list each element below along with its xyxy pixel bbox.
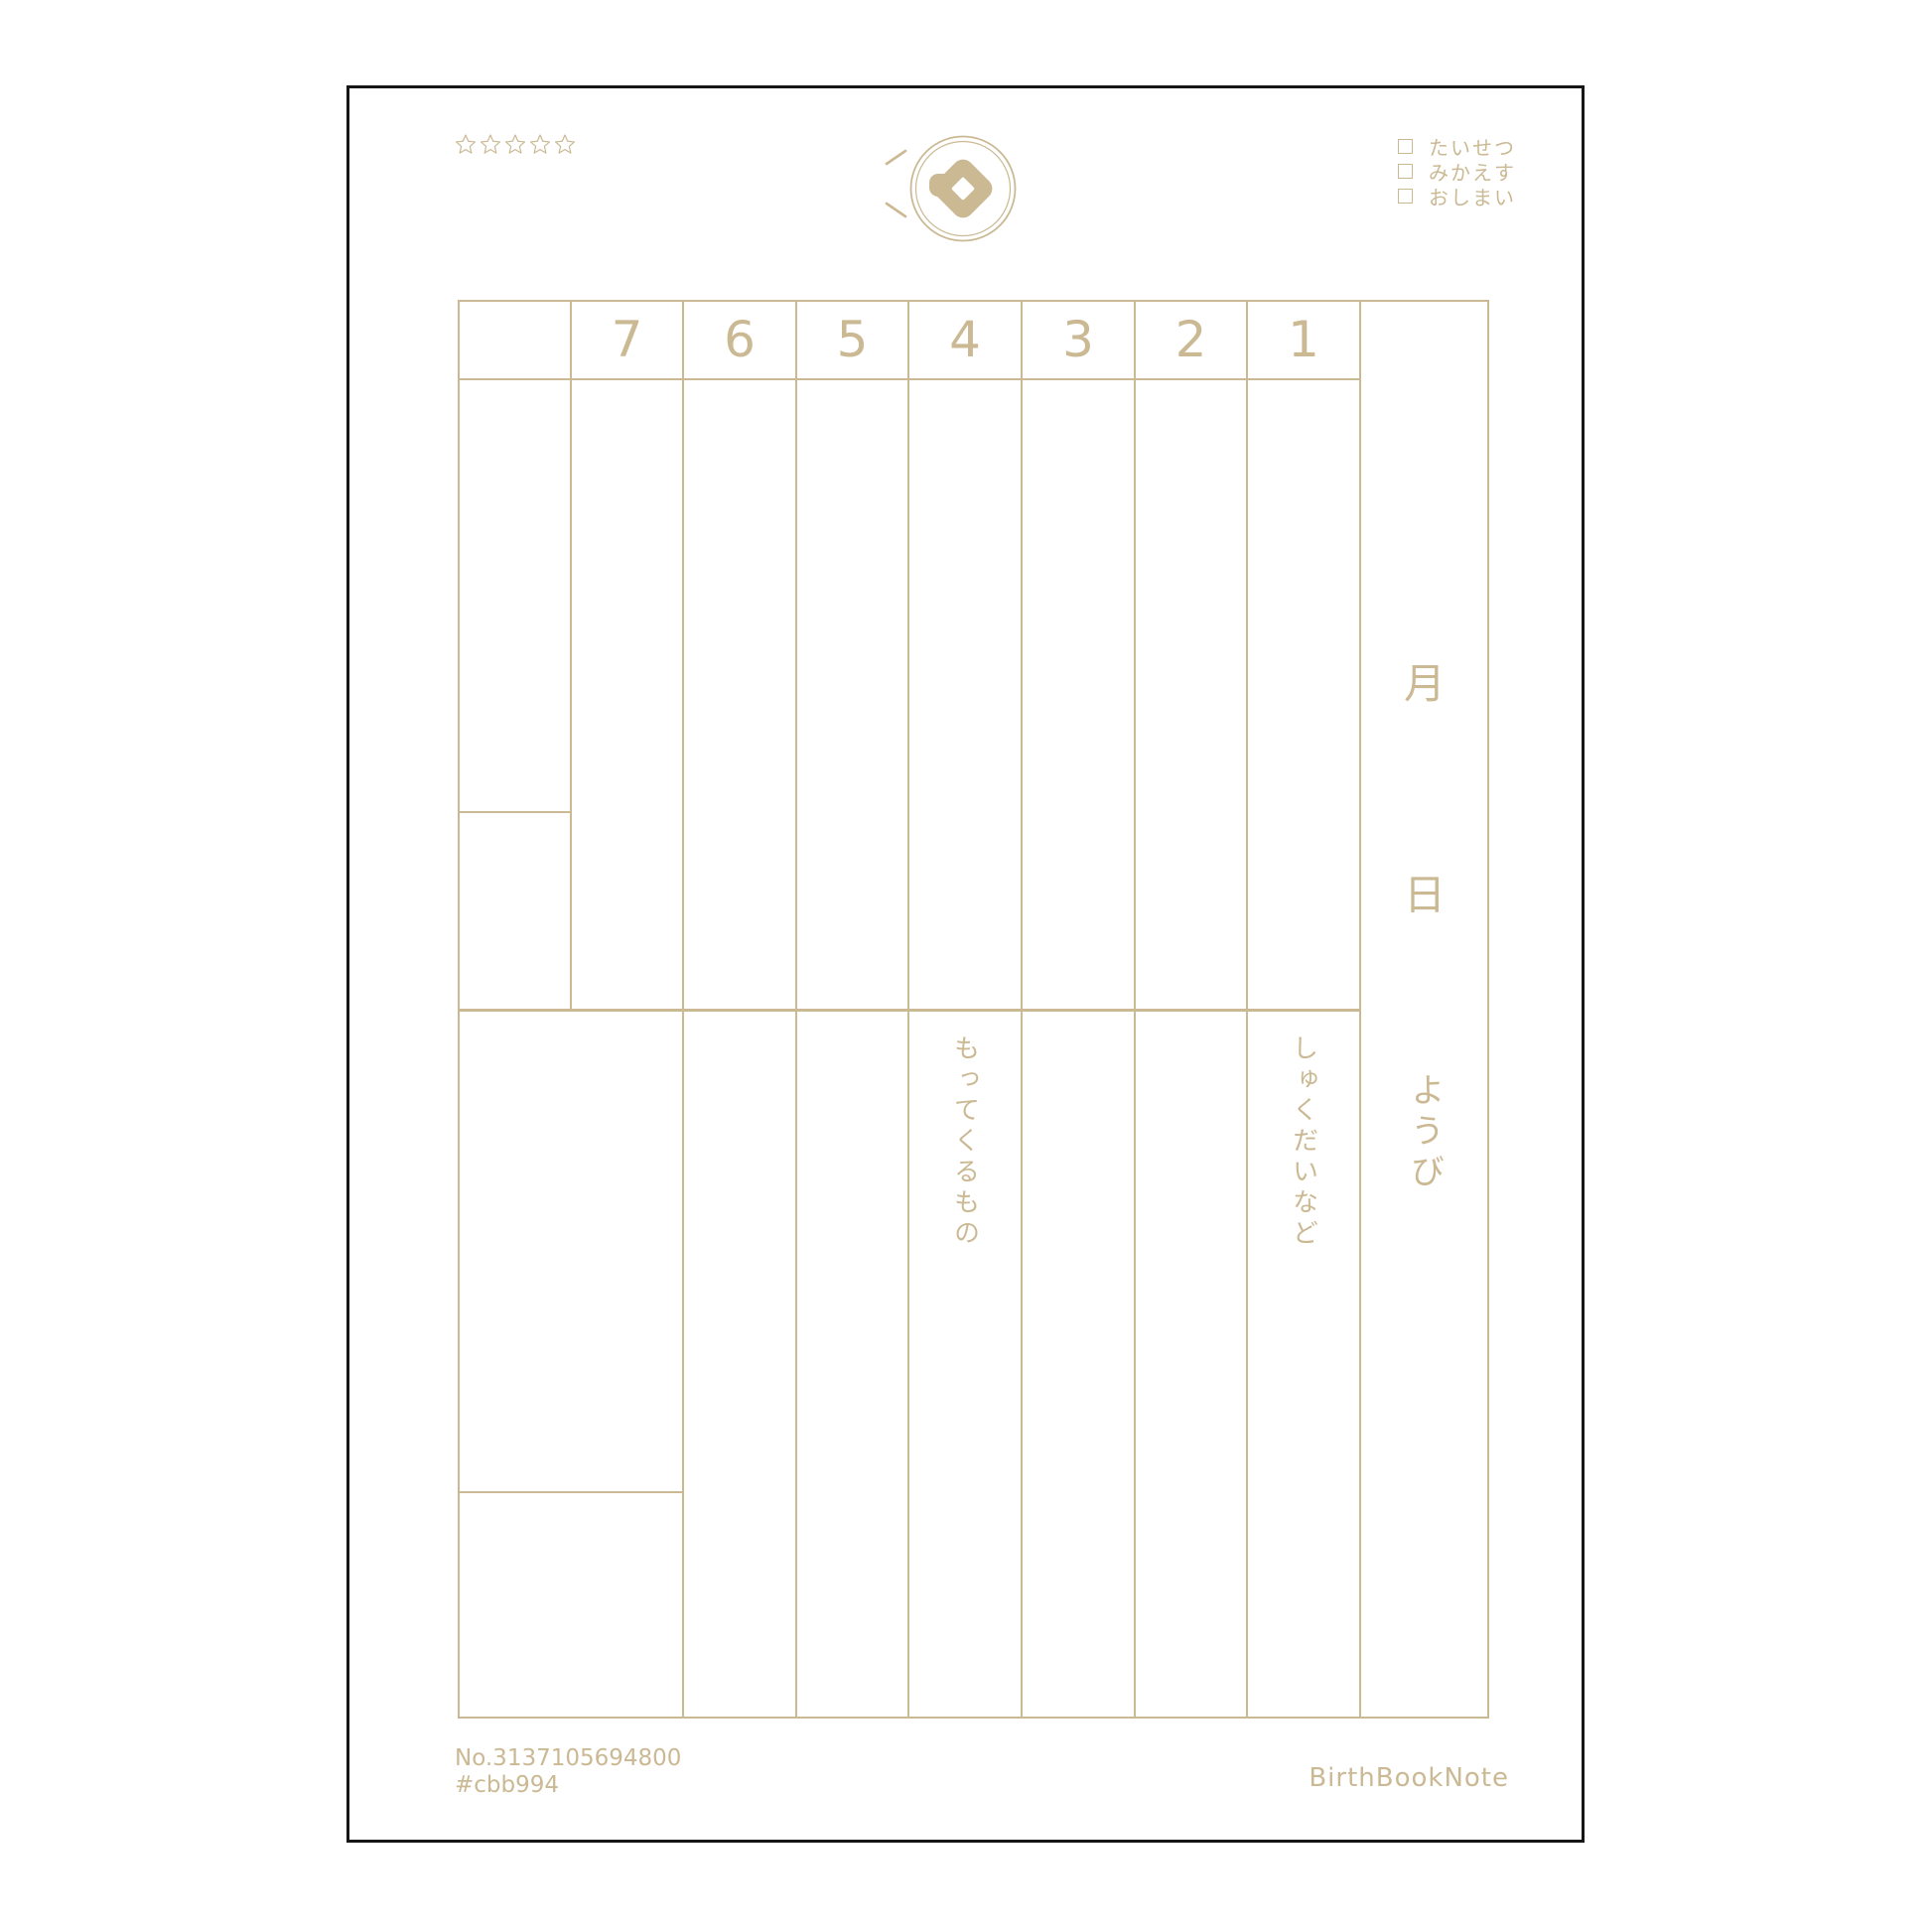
homework-column-label-wrap: しゅくだいなど (1247, 1035, 1360, 1250)
homework-column-label: しゅくだいなど (1286, 1035, 1322, 1250)
checklist-row: たいせつ (1398, 138, 1516, 155)
period-header-7: 7 (571, 300, 683, 379)
section-divider-line (458, 1009, 1360, 1012)
grid-vline (570, 300, 572, 1010)
bring-column-label-wrap: もってくるもの (908, 1035, 1022, 1250)
color-code: #cbb994 (455, 1772, 681, 1799)
checkbox-label: おしまい (1429, 182, 1516, 210)
checkbox-taisetsu[interactable] (1398, 139, 1413, 154)
period-header-2: 2 (1135, 300, 1247, 379)
footer-serial-block: No.3137105694800 #cbb994 (455, 1745, 681, 1799)
day-label: 日 (1360, 862, 1489, 922)
checkbox-mikaesu[interactable] (1398, 164, 1413, 179)
serial-number: No.3137105694800 (455, 1745, 681, 1772)
weekday-label-wrap: ようび (1360, 1072, 1489, 1194)
period-header-4: 4 (908, 300, 1022, 379)
weekday-label: ようび (1401, 1072, 1449, 1194)
star-outline-icon (454, 133, 579, 158)
period-header-3: 3 (1022, 300, 1135, 379)
bring-column-label: もってくるもの (947, 1035, 984, 1250)
checklist-row: みかえす (1398, 163, 1516, 180)
lower-left-split-line (458, 1491, 683, 1493)
period-header-6: 6 (683, 300, 796, 379)
label-column-split-line (458, 811, 571, 813)
checklist-row: おしまい (1398, 188, 1516, 205)
diamond-seal-logo-icon (844, 79, 1082, 298)
brand-name: BirthBookNote (1191, 1763, 1509, 1793)
month-label: 月 (1360, 650, 1489, 711)
period-header-1: 1 (1247, 300, 1360, 379)
period-header-5: 5 (796, 300, 908, 379)
notebook-page-image: たいせつ みかえす おしまい 7 6 5 4 3 2 1 月 日 ようび もって… (0, 0, 1932, 1932)
checkbox-oshimai[interactable] (1398, 189, 1413, 204)
